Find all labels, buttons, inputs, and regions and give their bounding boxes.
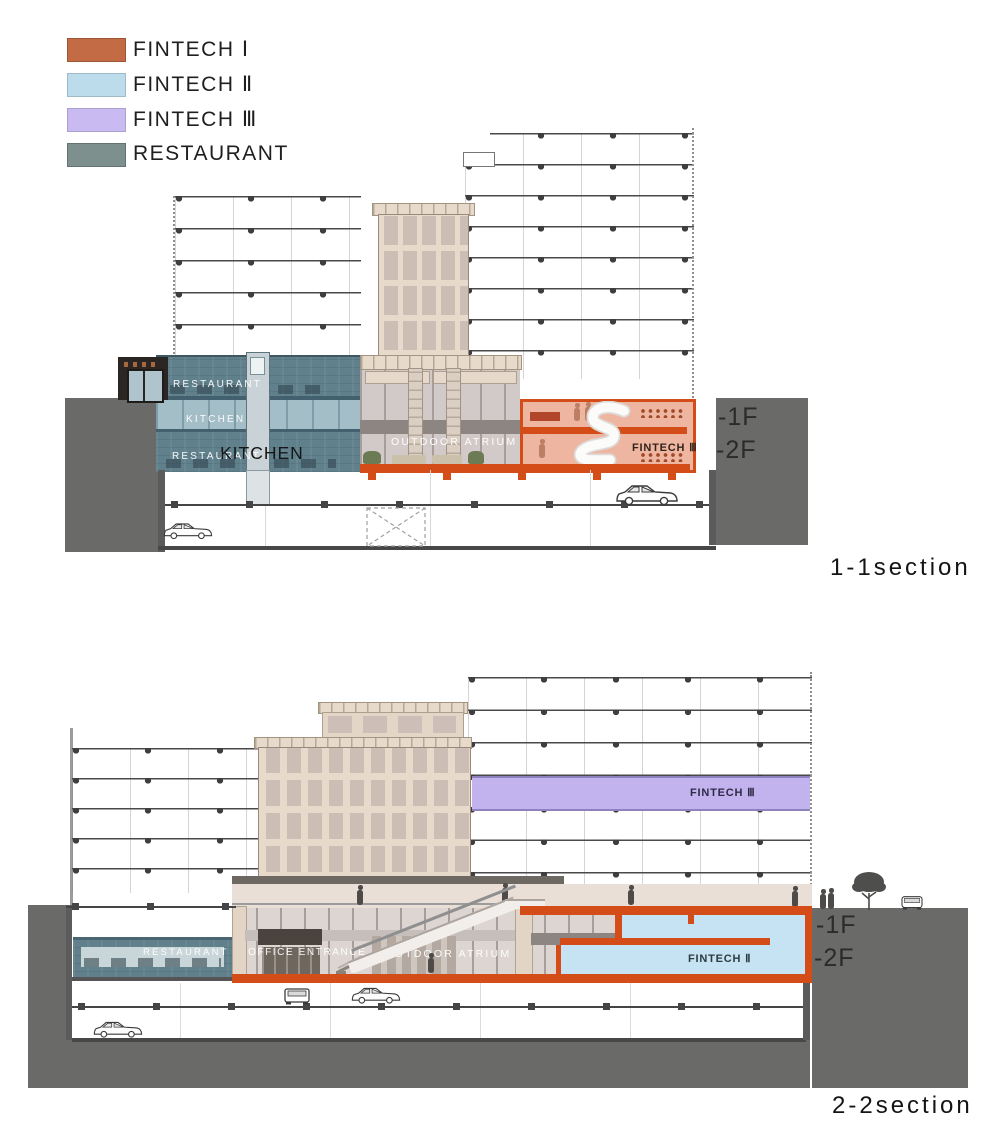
elevator-car (250, 357, 265, 375)
wireframe-building-right (465, 133, 694, 379)
roof-parapet-box (463, 152, 495, 167)
entrance-doors (127, 369, 164, 403)
level-label-minus1f: -1F (816, 911, 857, 940)
legend-label-fintech1: FINTECH Ⅰ (133, 37, 250, 62)
fintech2-minus2-space (560, 945, 805, 974)
entrance-canopy (258, 929, 322, 945)
x-brace-icon (366, 507, 426, 547)
level-label-minus2f: -2F (814, 944, 855, 973)
atrium-plant-right (468, 451, 484, 464)
architectural-section-drawing: FINTECH Ⅰ FINTECH Ⅱ FINTECH Ⅲ RESTAURANT… (0, 0, 1000, 1141)
level-label-minus1f: -1F (718, 403, 759, 432)
orange-floor-strip (232, 974, 812, 983)
fintech2-left-edge (556, 945, 561, 974)
fintech2-minus1-space (622, 915, 805, 938)
tree-icon (850, 869, 888, 911)
car-icon (350, 986, 402, 1005)
entrance-signal-dots (124, 362, 160, 367)
basement-bottom-slab (72, 1038, 806, 1042)
wireframe-building-left (72, 748, 258, 893)
masonry-tower (258, 747, 471, 880)
person-silhouette (357, 890, 363, 905)
fintech2-mid-slab (560, 938, 770, 945)
ground-mass-left (65, 398, 158, 552)
fintech3-band (472, 776, 810, 811)
fintech2-double-height (770, 938, 805, 945)
sidewalk-slab-left (66, 903, 236, 912)
fintech2-right-wall (805, 906, 812, 983)
atrium-column-left (408, 368, 423, 464)
restaurant-base-slab (66, 977, 236, 981)
person-silhouette (820, 894, 826, 909)
wireframe-building-left (175, 196, 361, 356)
basement-wall-right (709, 470, 716, 545)
car-icon (162, 521, 214, 541)
basement-wall-right (803, 983, 810, 1040)
person-silhouette (792, 891, 798, 907)
section-cut-line-right (692, 128, 694, 398)
legend-swatch-fintech3 (67, 108, 126, 132)
basement-mid-slab (72, 1003, 806, 1012)
outdoor-atrium-label-1: OUTDOOR ATRIUM (391, 436, 517, 448)
atrium-cornice (360, 355, 522, 370)
orange-floor-strip (360, 464, 690, 473)
person-silhouette (428, 958, 434, 973)
atrium-sofa-left (392, 455, 426, 464)
legend-swatch-restaurant (67, 143, 126, 167)
masonry-tower (378, 214, 469, 357)
fintech2-column-stub (688, 915, 694, 924)
atrium-plant-left (363, 451, 381, 464)
fintech2-room-label: FINTECH Ⅱ (688, 952, 751, 965)
atrium-sofa-right (432, 455, 462, 464)
fintech2-top-slab (520, 906, 812, 915)
restaurant-upper-label: RESTAURANT (173, 379, 262, 390)
kitchen-band-label: KITCHEN (186, 414, 245, 425)
atrium-column-right (446, 368, 461, 464)
person-silhouette (828, 893, 834, 909)
fintech-zone-chairs-top (640, 408, 686, 418)
orange-column-stub (593, 473, 601, 480)
legend-swatch-fintech1 (67, 38, 126, 62)
car-icon (92, 1020, 144, 1039)
orange-column-stub (368, 473, 376, 480)
basement-bottom-slab (158, 546, 716, 550)
orange-column-stub (668, 473, 676, 480)
fintech3-band-label: FINTECH Ⅲ (690, 786, 756, 799)
person-silhouette (628, 890, 634, 905)
legend-label-restaurant: RESTAURANT (133, 142, 289, 166)
restaurant-tables (84, 958, 221, 967)
car-front-icon (898, 895, 926, 910)
section-cut-line-right (810, 672, 812, 908)
section-title-1-1: 1-1section (830, 554, 971, 582)
atrium-dark-band (360, 420, 520, 434)
legend-label-fintech3: FINTECH Ⅲ (133, 107, 258, 132)
restaurant-label: RESTAURANT (143, 947, 229, 958)
basement-wall-left (66, 905, 72, 1040)
person-silhouette (539, 444, 545, 458)
kitchen-large-annotation: KITCHEN (220, 443, 304, 464)
car-icon (612, 484, 682, 506)
orange-column-stub (443, 473, 451, 480)
orange-column-stub (518, 473, 526, 480)
ground-mass-bottom (28, 1040, 810, 1088)
legend-swatch-fintech2 (67, 73, 126, 97)
fintech-room-label-1-1: FINTECH Ⅲ (632, 441, 698, 454)
tower-upper-panels (328, 716, 456, 733)
spiral-stair-icon (548, 401, 640, 465)
van-icon (284, 987, 310, 1005)
section-title-2-2: 2-2section (832, 1092, 973, 1120)
level-label-minus2f: -2F (716, 436, 757, 465)
podium-rail-line (232, 903, 522, 905)
podium-roof-band (232, 876, 564, 884)
facade-pilaster (232, 906, 247, 977)
legend-label-fintech2: FINTECH Ⅱ (133, 72, 254, 97)
